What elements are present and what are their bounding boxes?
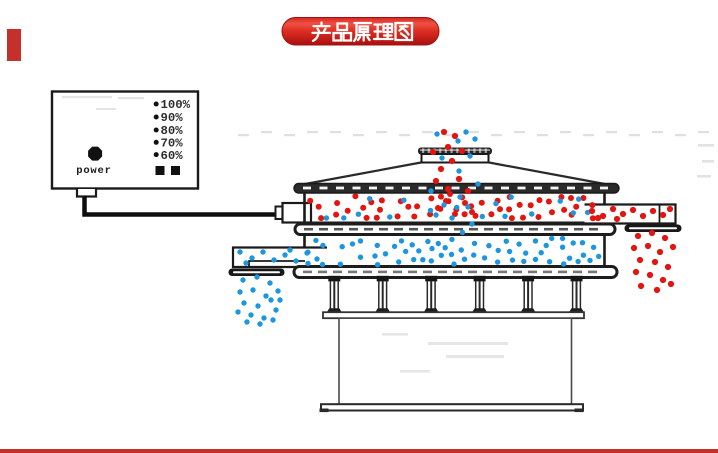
svg-text:100%: 100% — [161, 98, 191, 112]
svg-text:90%: 90% — [161, 111, 184, 125]
svg-text:60%: 60% — [161, 149, 184, 163]
svg-text:power: power — [76, 165, 112, 177]
